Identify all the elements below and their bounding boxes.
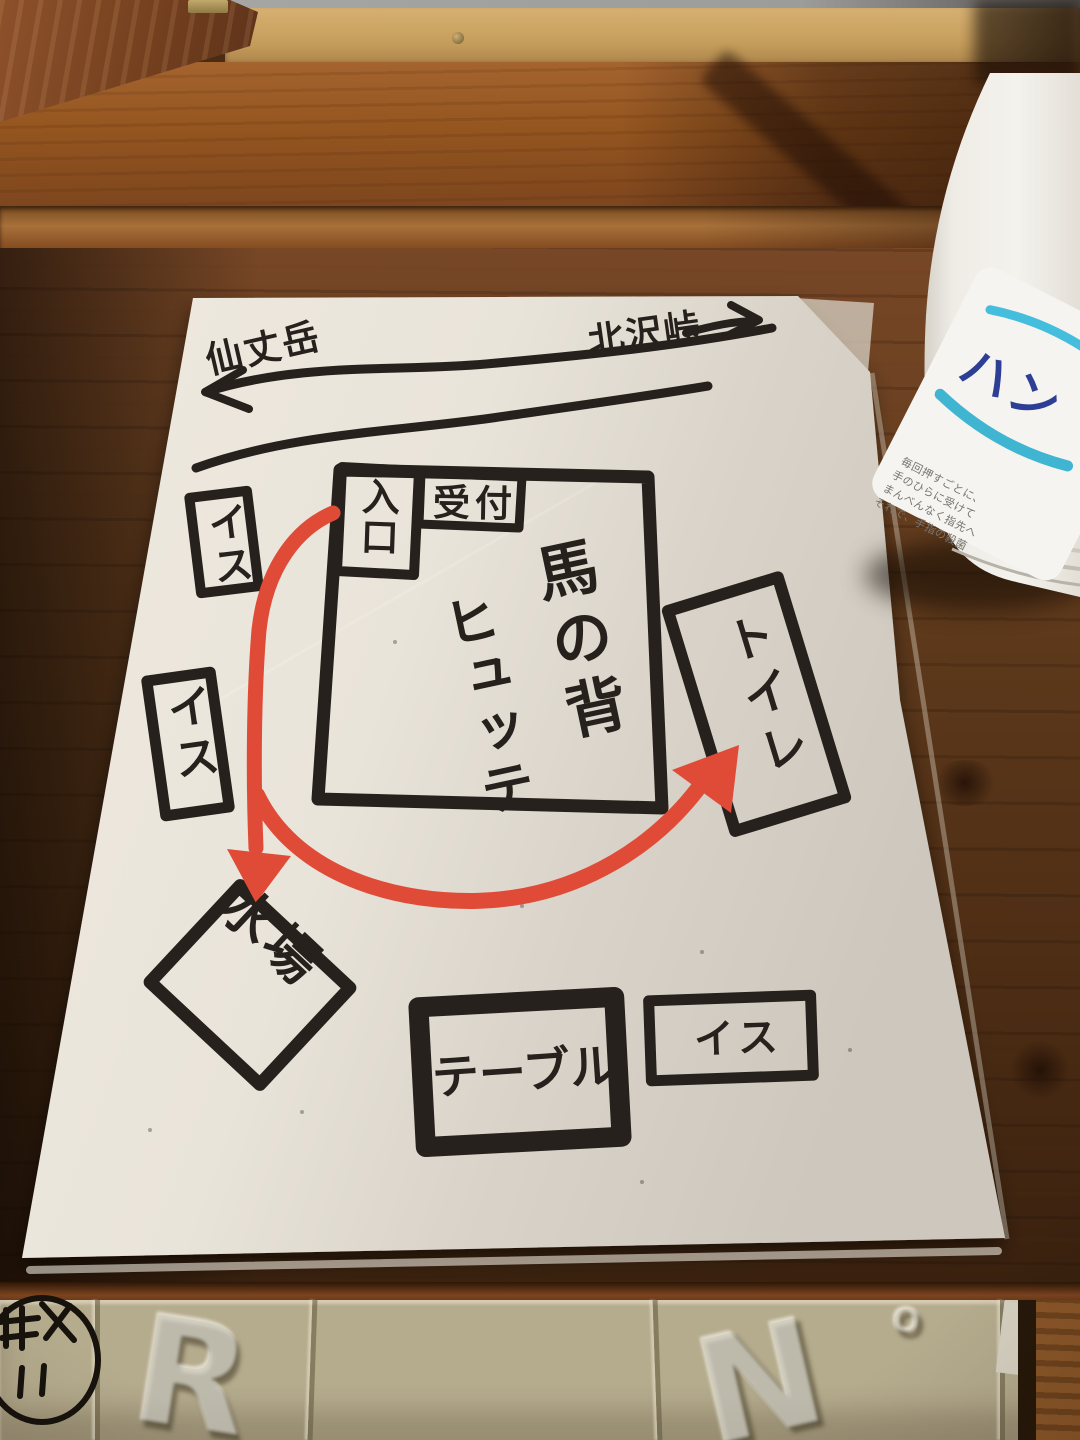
- photo-scene: 仙丈岳 北沢峠 入口 受付 馬の背 ヒュッテ イス イス トイレ 水場 テーブル…: [0, 0, 1080, 1440]
- embossed-letter: O: [893, 1303, 922, 1343]
- block-seam: [1018, 1300, 1036, 1440]
- table-label: テーブル: [431, 1042, 619, 1104]
- block-side-wood: [1036, 1300, 1080, 1440]
- chair3-label: イス: [693, 1016, 783, 1061]
- stamp-scribble: [0, 1292, 105, 1427]
- chair1-label: イス: [201, 500, 253, 590]
- sanitizer-bottle: ハン 毎回押すごとに、 手のひらに受けて まんべんなく指先へ それで、手指の殺菌: [860, 55, 1080, 635]
- chair2-label: イス: [159, 681, 220, 789]
- entrance-label: 入口: [355, 476, 398, 557]
- reception-label: 受付: [433, 484, 518, 524]
